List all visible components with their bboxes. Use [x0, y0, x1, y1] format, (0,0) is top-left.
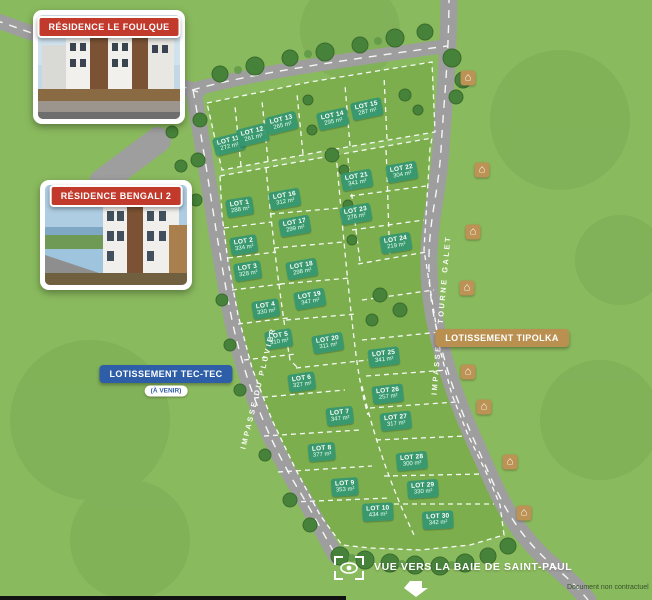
house-glyph: ⌂ — [470, 226, 477, 238]
lot-label-10: LOT 10434 m² — [362, 502, 394, 522]
tipolka-label: LOTISSEMENT TIPOLKA — [445, 333, 559, 343]
lot-area: 327 m² — [293, 381, 312, 391]
house-glyph: ⌂ — [479, 164, 486, 176]
house-glyph: ⌂ — [465, 366, 472, 378]
lot-label-6: LOT 6327 m² — [287, 371, 317, 393]
lotissement-tipolka-banner: LOTISSEMENT TIPOLKA — [435, 329, 569, 347]
footnote: Document non contractuel — [567, 584, 649, 591]
lot-area: 347 m² — [331, 415, 350, 424]
residence-bengali-title: RÉSIDENCE BENGALI 2 — [61, 191, 172, 201]
down-arrow-icon — [404, 581, 428, 597]
house-icon: ⌂ — [466, 225, 481, 240]
lot-area: 300 m² — [403, 460, 422, 469]
house-glyph: ⌂ — [464, 282, 471, 294]
lot-label-29: LOT 29330 m² — [407, 479, 439, 499]
lot-area: 288 m² — [231, 206, 251, 216]
lot-area: 342 m² — [429, 520, 448, 528]
bottom-edge-bar — [0, 596, 346, 600]
lot-area: 330 m² — [414, 488, 433, 496]
residence-bengali-banner: RÉSIDENCE BENGALI 2 — [50, 185, 183, 207]
lot-area: 311 m² — [319, 342, 338, 352]
house-icon: ⌂ — [475, 163, 490, 178]
tec-tec-label: LOTISSEMENT TEC-TEC — [109, 369, 222, 379]
eye-glyph — [339, 561, 359, 575]
lot-label-27: LOT 27317 m² — [380, 410, 413, 431]
site-plan: RÉSIDENCE LE FOULQUE RÉSIDENCE BENGALI 2… — [0, 0, 652, 600]
lot-label-26: LOT 26257 m² — [372, 383, 405, 404]
tec-tec-a-venir-badge: (À VENIR) — [145, 386, 188, 397]
house-icon: ⌂ — [461, 365, 476, 380]
lot-label-9: LOT 9353 m² — [331, 477, 360, 497]
house-glyph: ⌂ — [481, 401, 488, 413]
lot-area: 257 m² — [379, 393, 398, 402]
lot-area: 219 m² — [387, 242, 407, 252]
lot-area: 434 m² — [369, 512, 388, 520]
house-glyph: ⌂ — [521, 507, 528, 519]
lot-area: 328 m² — [239, 270, 259, 280]
lot-area: 341 m² — [375, 356, 394, 365]
house-icon: ⌂ — [477, 400, 492, 415]
house-icon: ⌂ — [461, 71, 476, 86]
lotissement-tec-tec-banner: LOTISSEMENT TEC-TEC — [99, 365, 232, 383]
lot-area: 334 m² — [235, 244, 255, 254]
residence-foulque-banner: RÉSIDENCE LE FOULQUE — [37, 16, 180, 38]
house-icon: ⌂ — [460, 281, 475, 296]
lot-area: 353 m² — [336, 486, 355, 494]
lot-label-7: LOT 7347 m² — [325, 406, 354, 427]
lot-area: 377 m² — [313, 451, 332, 460]
lot-label-28: LOT 28300 m² — [396, 451, 429, 472]
house-glyph: ⌂ — [465, 72, 472, 84]
view-callout-label: VUE VERS LA BAIE DE SAINT-PAUL — [374, 561, 572, 573]
house-glyph: ⌂ — [507, 456, 514, 468]
lot-label-8: LOT 8377 m² — [308, 442, 337, 462]
house-icon: ⌂ — [517, 506, 532, 521]
eye-icon — [334, 556, 364, 580]
residence-foulque-title: RÉSIDENCE LE FOULQUE — [48, 22, 169, 32]
a-venir-label: (À VENIR) — [151, 388, 182, 395]
house-icon: ⌂ — [503, 455, 518, 470]
lot-area: 330 m² — [257, 308, 277, 318]
lot-area: 317 m² — [387, 420, 406, 429]
lot-label-25: LOT 25341 m² — [367, 346, 400, 368]
lot-label-30: LOT 30342 m² — [422, 510, 454, 530]
